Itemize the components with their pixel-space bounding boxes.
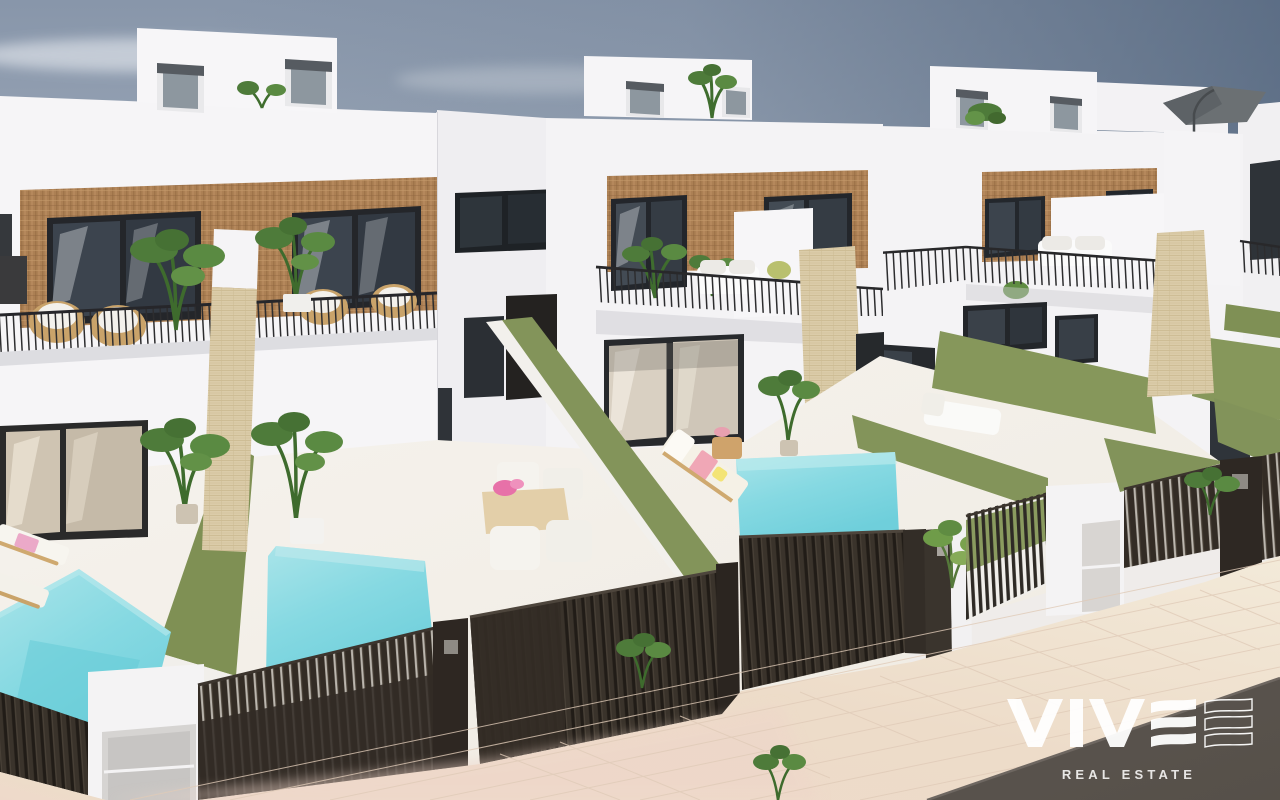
svg-text:REAL ESTATE: REAL ESTATE [1062,767,1196,782]
